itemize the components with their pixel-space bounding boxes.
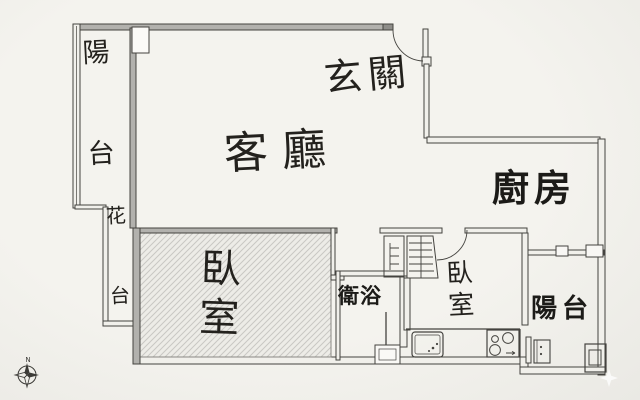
compass-icon: N — [15, 356, 39, 387]
window-wall — [130, 28, 136, 228]
bedroom-top-wall — [133, 228, 337, 233]
compass-north-mark: N — [25, 356, 30, 364]
label-bedroom-main: 臥室 — [194, 246, 237, 345]
kitchen-top-wall — [427, 137, 600, 143]
kitchen-fixtures — [406, 329, 520, 357]
entry-side-wall — [424, 64, 429, 138]
bedroom-right-wall — [331, 228, 335, 277]
label-bathroom: 衛浴 — [338, 286, 382, 307]
bedroom-left-wall — [133, 228, 140, 364]
top-wall — [75, 24, 383, 30]
bedroom2-right-wall — [522, 233, 528, 325]
counter-edge — [406, 329, 520, 357]
label-kitchen: 廚房 — [492, 170, 576, 207]
label-entrance: 玄關 — [323, 52, 414, 98]
bathroom-top-wall — [336, 271, 404, 276]
kitchen-sink-icon — [412, 332, 443, 357]
label-bedroom-second: 臥室 — [443, 258, 472, 323]
bedroom2-door-swing-icon — [437, 230, 467, 260]
balcony-wall-stub — [556, 246, 568, 256]
column — [132, 27, 149, 53]
label-living-room: 客廳 — [223, 127, 341, 177]
stove-icon — [487, 330, 519, 357]
wardrobe-block — [380, 228, 442, 330]
corridor-wall — [404, 278, 410, 330]
balcony-bottom-wall — [520, 367, 605, 374]
wardrobe-top-wall — [380, 228, 442, 233]
floor-plan: N 陽台 玄關 客廳 廚房 花台 臥室 衛浴 臥室 陽台 — [0, 0, 640, 400]
bottom-wall — [133, 357, 525, 364]
water-heater-icon — [526, 337, 550, 363]
balcony-corner-column — [586, 245, 603, 257]
label-balcony-bottom-right: 陽台 — [531, 296, 593, 322]
door-jamb — [383, 24, 393, 30]
bedroom2-top-wall — [465, 228, 527, 233]
